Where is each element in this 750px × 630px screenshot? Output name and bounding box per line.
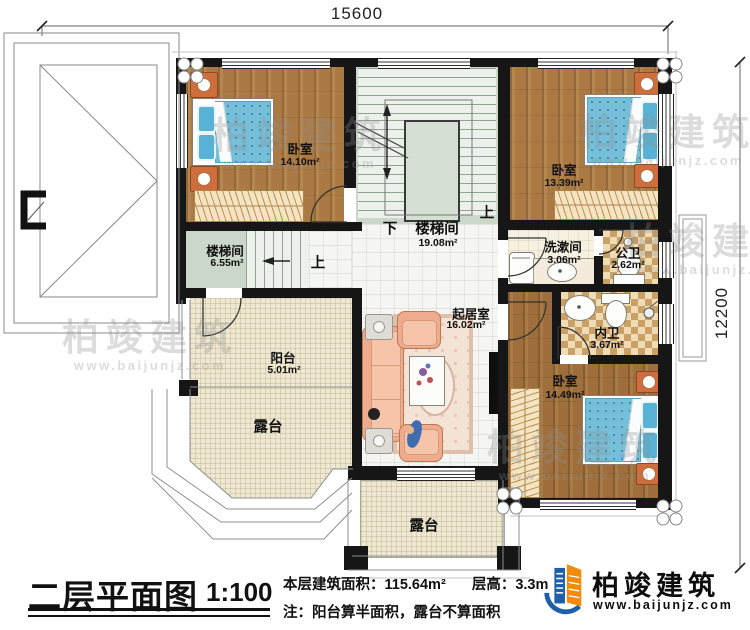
wall — [498, 58, 510, 224]
wall — [176, 288, 206, 298]
living-side-table-top — [365, 314, 393, 340]
wall — [498, 220, 672, 230]
wall — [176, 222, 362, 231]
door-opening — [498, 304, 508, 340]
label-washroom: 洗漱间 — [544, 237, 582, 256]
right-outside-outline — [679, 215, 706, 361]
door-opening — [206, 288, 242, 298]
area-label: 本层建筑面积： — [283, 577, 385, 593]
area-stairwell-left: 6.55m² — [210, 257, 243, 269]
wall — [242, 288, 362, 298]
window — [658, 242, 674, 278]
label-stair-down: 下 — [383, 218, 398, 239]
wall — [344, 58, 356, 188]
area-bedroom-1: 14.10m² — [280, 156, 319, 168]
wall — [498, 340, 508, 480]
person-figure-head — [406, 426, 414, 434]
wall — [498, 284, 672, 292]
stair-treads-left — [358, 120, 404, 218]
bedroom1-wardrobe — [194, 190, 304, 222]
pillar — [497, 546, 521, 570]
bedroom2-nightstand-top — [634, 72, 660, 96]
bedroom1-nightstand-top — [190, 72, 218, 98]
label-terrace-bottom: 露台 — [410, 515, 439, 536]
pillar — [344, 546, 368, 570]
area-washroom: 3.06m² — [547, 254, 580, 266]
washing-machine — [509, 252, 535, 284]
title-underline — [28, 608, 270, 617]
window — [658, 304, 674, 344]
area-bedroom-3: 14.49m² — [545, 389, 584, 401]
chimney-mark — [24, 194, 46, 226]
brand-url: www.baijunjz.com — [593, 598, 733, 612]
floor-terrace-left — [190, 388, 353, 498]
window — [538, 58, 634, 69]
label-bedroom-1: 卧室 — [287, 139, 312, 158]
door-opening — [498, 240, 508, 278]
pillar — [179, 380, 198, 396]
window — [378, 58, 470, 69]
stair-landing — [404, 120, 460, 222]
note-text: 注：阳台算半面积，露台不算面积 — [283, 601, 501, 622]
label-stairwell-main: 楼梯间 — [415, 218, 459, 239]
label-bedroom-3: 卧室 — [552, 371, 577, 390]
bedroom2-wardrobe — [554, 190, 660, 220]
bedroom3-wardrobe — [510, 388, 540, 498]
label-terrace-left: 露台 — [254, 416, 283, 437]
window — [540, 499, 636, 510]
label-stair-up-main: 上 — [480, 202, 495, 223]
stair-treads-left-stairwell — [246, 231, 309, 288]
bedroom2-nightstand-bottom — [634, 164, 660, 188]
window — [176, 94, 188, 168]
floor-bedroom-3-alcove — [508, 292, 552, 363]
area-private-bath: 3.67m² — [590, 339, 623, 351]
wall — [498, 278, 508, 304]
living-coffee-table — [409, 356, 445, 406]
bedroom1-bed — [192, 98, 274, 166]
area-bedroom-2: 13.39m² — [544, 177, 583, 189]
window — [658, 94, 674, 166]
wall — [552, 292, 561, 364]
living-armchair-top — [397, 311, 441, 349]
dimension-vertical: 12200 — [712, 287, 732, 339]
brand-logo-icon — [540, 561, 588, 619]
floor-area-info: 本层建筑面积：115.64m² 层高：3.3m — [283, 573, 548, 594]
area-stairwell-main: 19.08m² — [418, 237, 457, 249]
drawing-scale: 1:100 — [206, 577, 273, 608]
area-balcony: 5.01m² — [267, 364, 300, 376]
bedroom2-bed — [584, 94, 660, 166]
wall — [352, 288, 362, 478]
door-opening — [560, 355, 588, 364]
door-opening — [595, 236, 603, 256]
stair-treads-top — [358, 68, 496, 120]
window — [397, 467, 475, 481]
floor-plan-canvas: 柏竣建筑www.baijunjz.com 柏竣建筑www.baijunjz.co… — [0, 0, 750, 630]
bedroom3-bed — [582, 395, 662, 465]
wall — [552, 355, 560, 364]
private-bath-sink — [564, 295, 596, 321]
wall — [498, 224, 508, 240]
label-stair-up-left: 上 — [311, 252, 326, 273]
roof-outline — [4, 33, 179, 333]
wall — [594, 256, 603, 292]
door-opening — [344, 188, 356, 222]
label-bedroom-2: 卧室 — [551, 160, 576, 179]
bedroom1-nightstand-bottom — [190, 166, 218, 192]
wall — [588, 355, 672, 364]
window — [222, 58, 330, 69]
area-living-room: 16.02m² — [446, 319, 485, 331]
area-public-bath: 2.62m² — [611, 259, 644, 271]
living-side-table-bottom — [365, 428, 393, 454]
height-label: 层高： — [472, 577, 516, 593]
dimension-horizontal: 15600 — [331, 4, 383, 24]
area-value: 115.64m² — [385, 577, 446, 593]
